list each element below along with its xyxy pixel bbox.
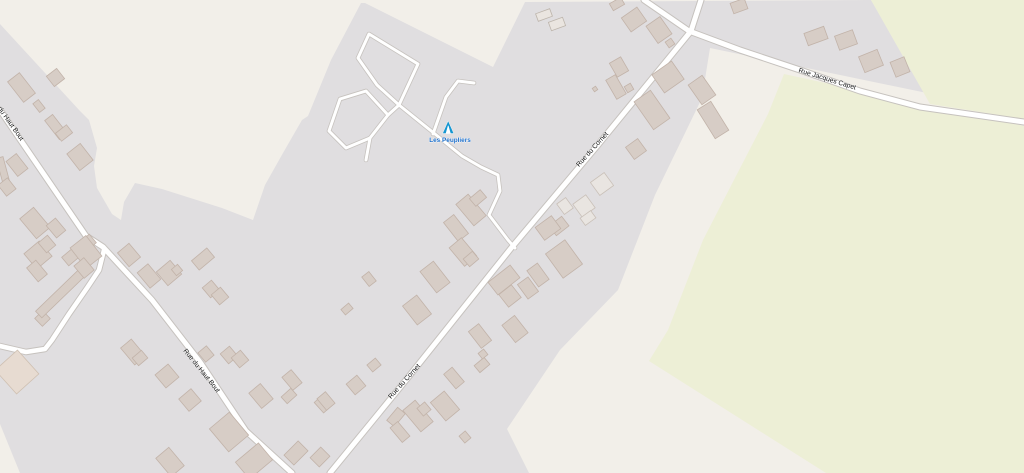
- svg-text:Les Peupliers: Les Peupliers: [429, 137, 471, 144]
